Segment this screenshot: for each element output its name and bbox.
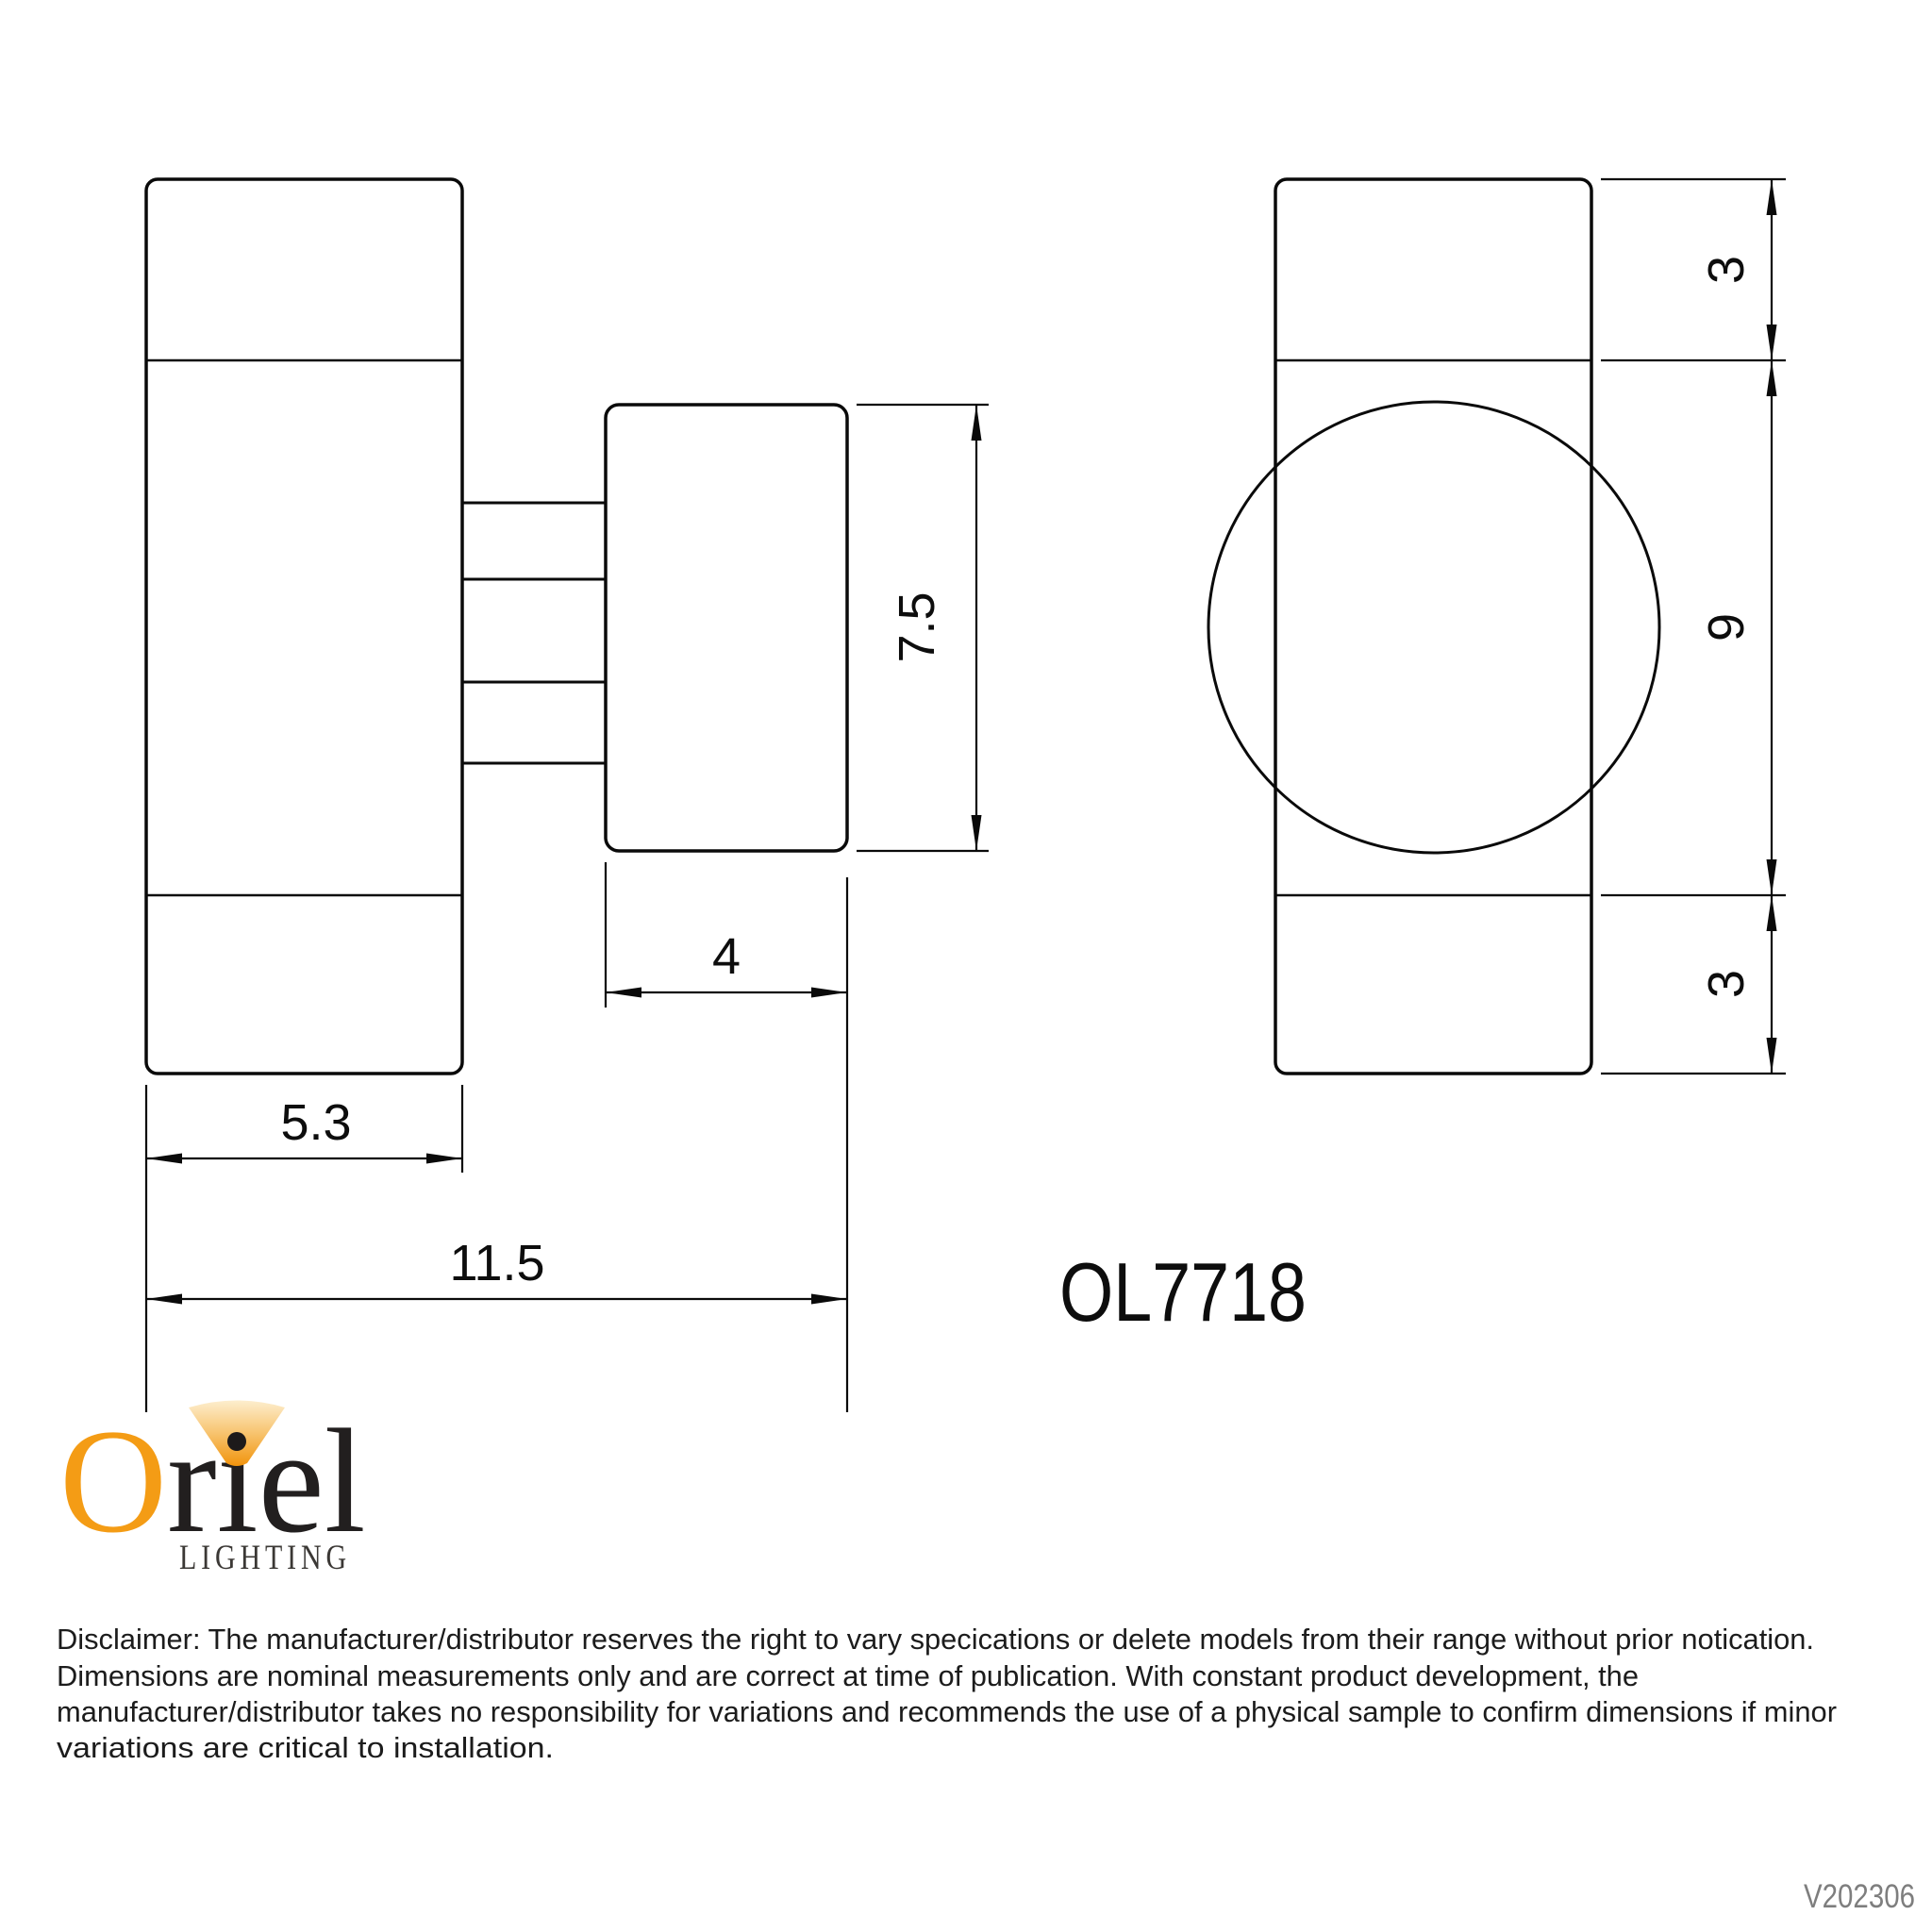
front-view-outline [146, 179, 462, 1074]
disclaimer-line-2: Dimensions are nominal measurements only… [57, 1659, 1639, 1692]
logo-letter-o: O [59, 1399, 167, 1564]
disclaimer-line-3: manufacturer/distributor takes no respon… [57, 1695, 1837, 1728]
dim-label-mid-section: 9 [1698, 613, 1755, 641]
rear-view-outline [1275, 179, 1591, 1074]
disclaimer-block: Disclaimer: The manufacturer/distributor… [57, 1623, 1837, 1764]
dim-label-overall-width: 11.5 [449, 1235, 544, 1291]
spec-sheet-page: 7.5 4 5.3 11.5 3 9 3 OL7718 Orıel [0, 0, 1932, 1932]
dimension-drawing: 7.5 4 5.3 11.5 3 9 3 OL7718 Orıel [0, 0, 1932, 1932]
bracket-bars [462, 503, 606, 763]
dim-right-ext-lines [1601, 179, 1786, 1074]
disclaimer-line-1: Disclaimer: The manufacturer/distributor… [57, 1623, 1814, 1656]
dim-label-bottom-section: 3 [1698, 970, 1755, 998]
lamp-dot-icon [227, 1432, 246, 1451]
logo-tagline: LIGHTING [179, 1539, 351, 1577]
dim-label-front-width: 5.3 [280, 1094, 351, 1151]
disclaimer-line-4: variations are critical to installation. [57, 1731, 554, 1764]
version-code: V202306 [1804, 1878, 1915, 1915]
oriel-logo: Orıel LIGHTING [59, 1399, 366, 1577]
dim-label-body-depth: 4 [712, 928, 741, 985]
dim-label-top-section: 3 [1698, 256, 1755, 284]
model-number: OL7718 [1059, 1245, 1307, 1339]
dim-label-body-height: 7.5 [889, 591, 945, 662]
side-view-outline [606, 405, 847, 851]
